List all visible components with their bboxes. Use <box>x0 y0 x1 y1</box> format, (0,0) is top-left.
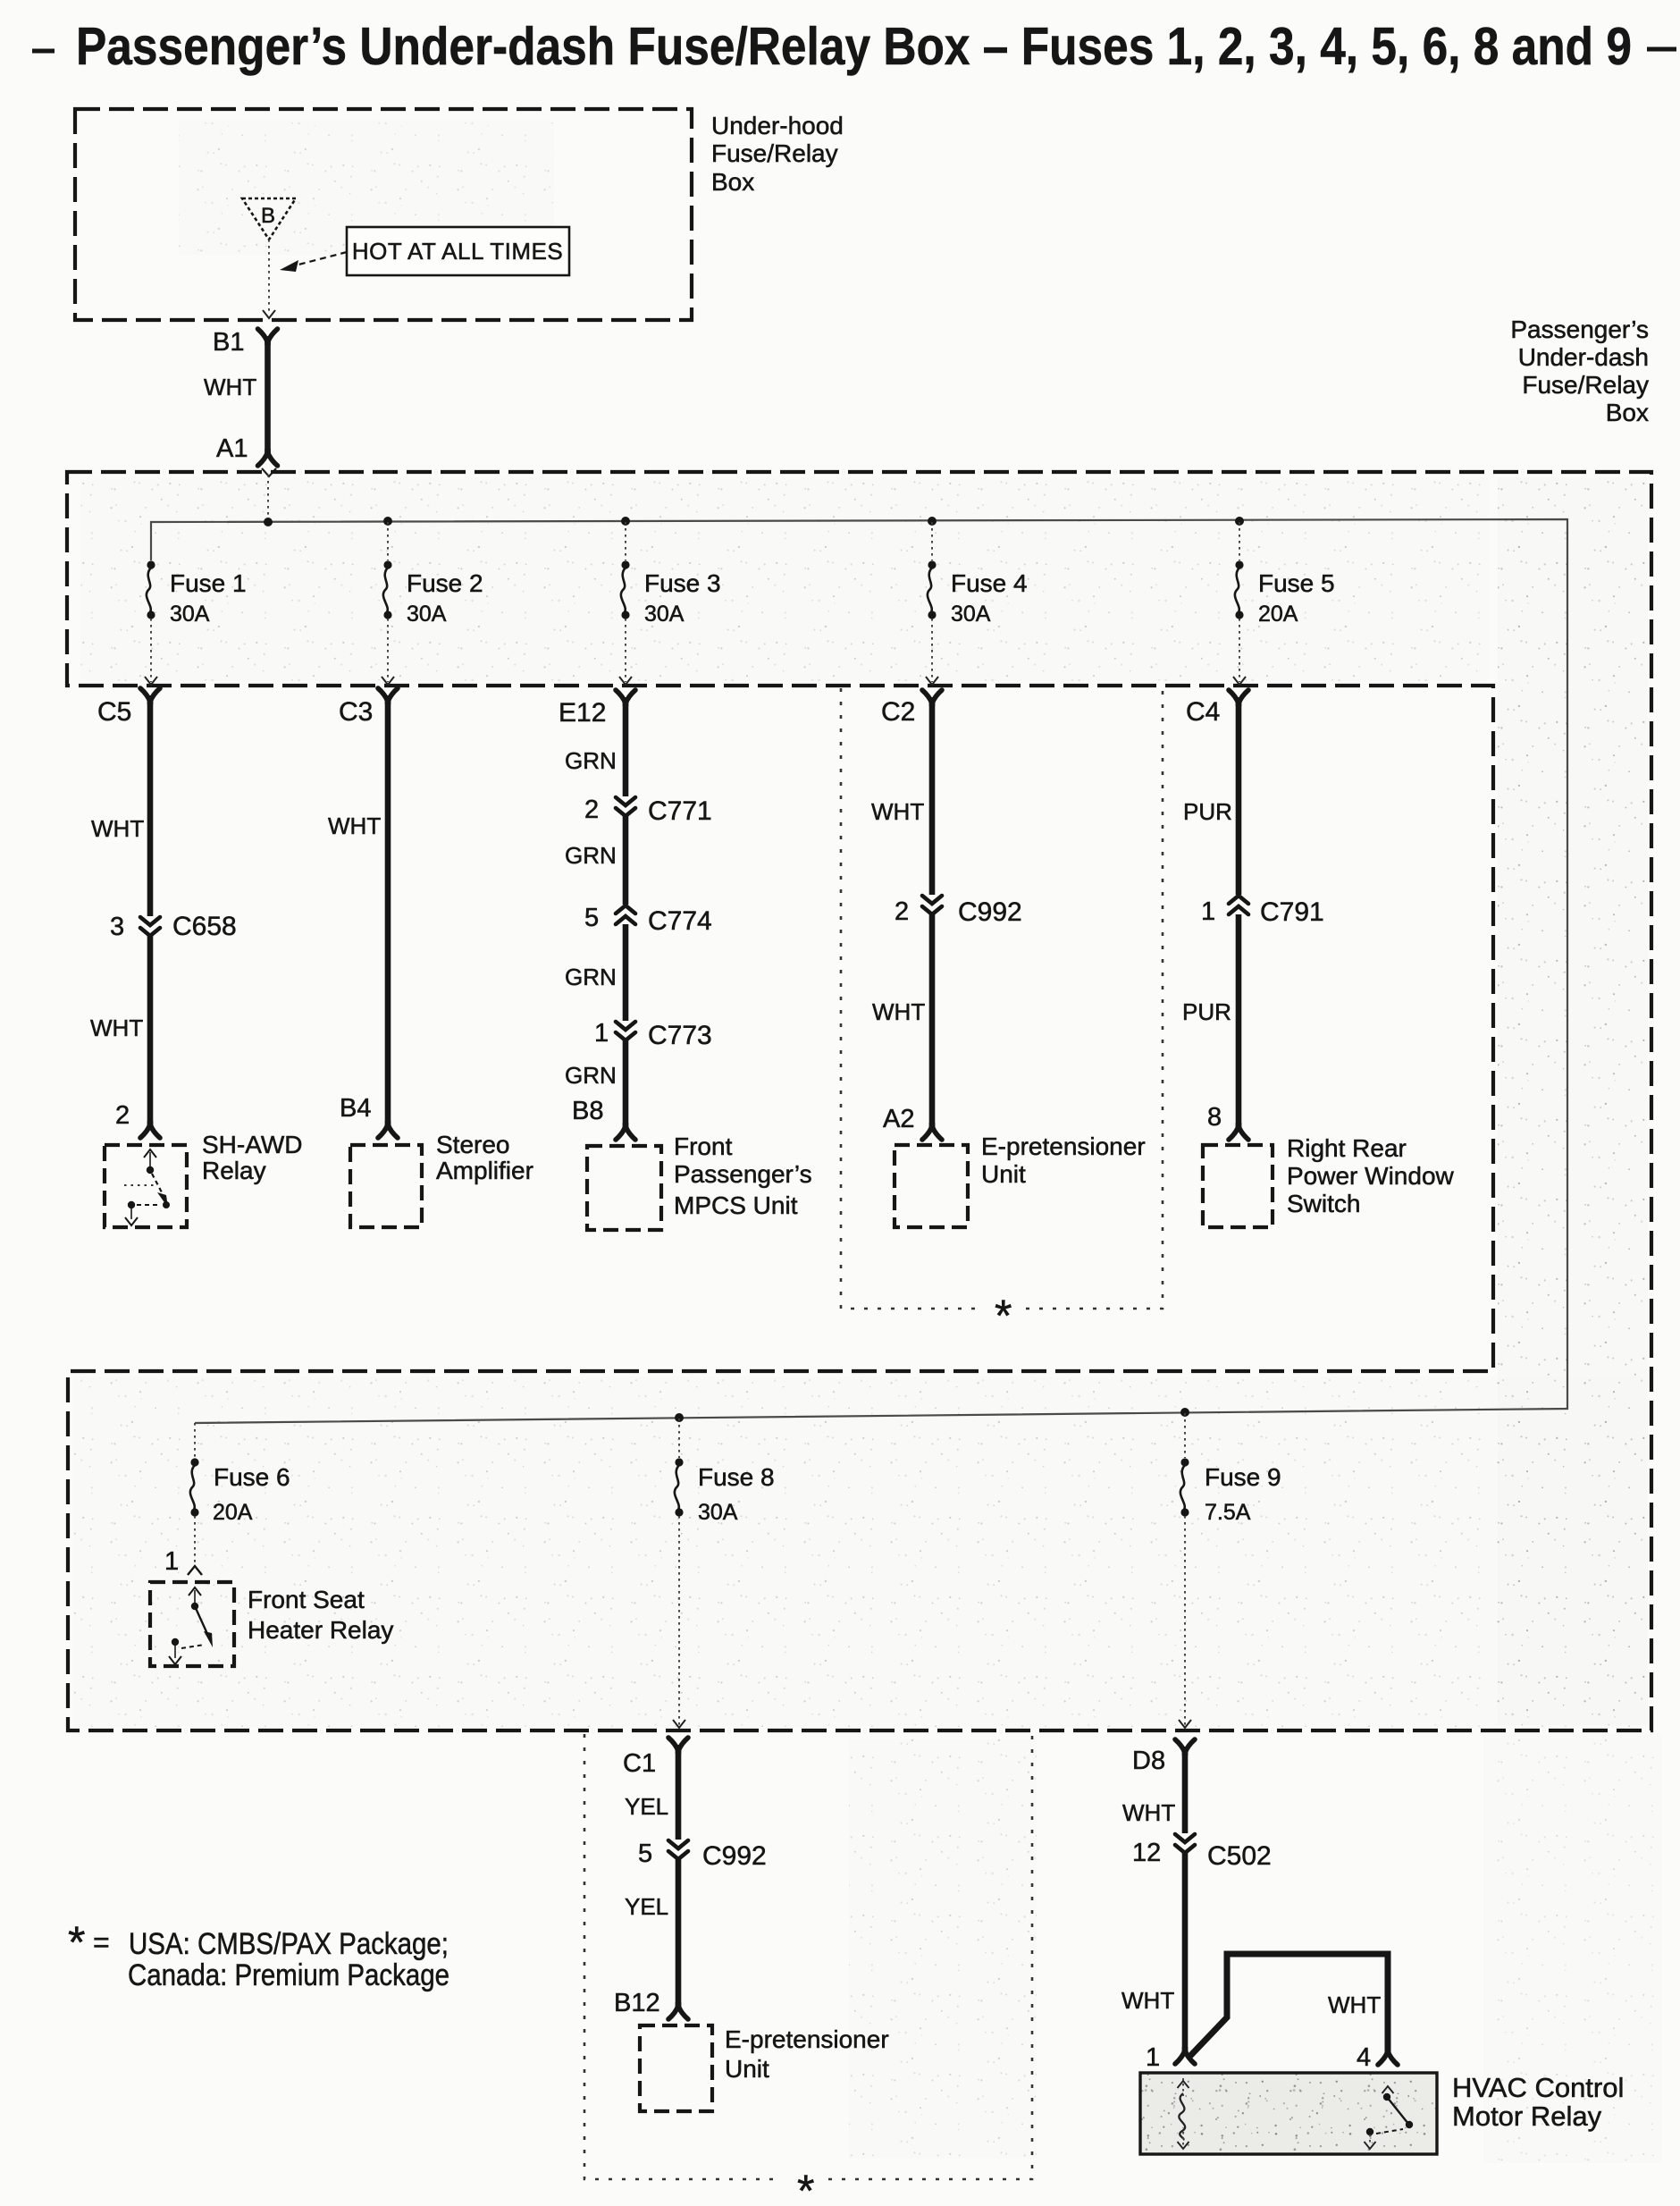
svg-text:Heater Relay: Heater Relay <box>248 1616 393 1644</box>
svg-text:C5: C5 <box>97 697 131 727</box>
svg-text:5: 5 <box>638 1840 652 1868</box>
svg-text:8: 8 <box>1207 1103 1222 1132</box>
svg-text:C992: C992 <box>958 897 1022 927</box>
svg-text:C3: C3 <box>339 697 373 727</box>
svg-text:1: 1 <box>1146 2043 1160 2072</box>
svg-text:4: 4 <box>1357 2043 1371 2072</box>
svg-text:B: B <box>261 204 275 228</box>
svg-text:30A: 30A <box>407 602 447 627</box>
svg-text:1: 1 <box>1201 897 1215 926</box>
svg-text:Stereo: Stereo <box>436 1131 510 1158</box>
svg-text:C1: C1 <box>623 1749 656 1778</box>
svg-text:Under-dash: Under-dash <box>1518 343 1649 371</box>
svg-text:WHT: WHT <box>872 998 925 1025</box>
svg-text:C658: C658 <box>172 912 237 941</box>
svg-text:WHT: WHT <box>328 813 381 839</box>
svg-text:Fuse/Relay: Fuse/Relay <box>1522 371 1649 399</box>
svg-text:*: * <box>68 1917 85 1967</box>
svg-text:Fuse 8: Fuse 8 <box>698 1463 775 1491</box>
svg-text:GRN: GRN <box>565 747 617 774</box>
svg-text:B8: B8 <box>572 1097 603 1125</box>
svg-text:Right Rear: Right Rear <box>1287 1134 1407 1162</box>
svg-text:1: 1 <box>164 1547 179 1576</box>
svg-text:Under-hood: Under-hood <box>711 112 844 139</box>
svg-text:Front: Front <box>674 1132 733 1160</box>
svg-text:USA: CMBS/PAX Package;: USA: CMBS/PAX Package; <box>129 1927 449 1961</box>
svg-text:B4: B4 <box>340 1094 371 1123</box>
svg-text:E12: E12 <box>559 698 606 728</box>
svg-text:C791: C791 <box>1260 897 1324 927</box>
svg-text:Fuse 9: Fuse 9 <box>1205 1463 1281 1491</box>
svg-text:30A: 30A <box>644 602 685 627</box>
svg-text:Box: Box <box>711 168 754 196</box>
svg-text:3: 3 <box>110 913 124 941</box>
svg-text:GRN: GRN <box>565 842 617 869</box>
svg-text:=: = <box>93 1926 110 1958</box>
svg-text:Passenger’s: Passenger’s <box>674 1160 812 1188</box>
svg-text:7.5A: 7.5A <box>1205 1500 1251 1525</box>
svg-text:WHT: WHT <box>1328 1991 1381 2018</box>
svg-text:B1: B1 <box>213 328 244 357</box>
svg-text:YEL: YEL <box>625 1893 668 1920</box>
svg-text:Fuse 3: Fuse 3 <box>644 569 721 597</box>
svg-text:Canada: Premium Package: Canada: Premium Package <box>128 1958 449 1992</box>
svg-text:C2: C2 <box>881 697 915 727</box>
svg-text:C771: C771 <box>648 796 712 826</box>
svg-text:D8: D8 <box>1132 1747 1165 1775</box>
svg-text:Unit: Unit <box>725 2055 769 2083</box>
svg-text:Power Window: Power Window <box>1287 1162 1455 1190</box>
svg-text:Fuse 1: Fuse 1 <box>170 569 247 597</box>
svg-text:5: 5 <box>584 904 599 932</box>
svg-text:PUR: PUR <box>1183 798 1232 825</box>
svg-text:Fuse 5: Fuse 5 <box>1258 569 1335 597</box>
svg-text:WHT: WHT <box>90 1015 143 1041</box>
svg-text:Amplifier: Amplifier <box>436 1157 533 1184</box>
svg-text:Fuse 2: Fuse 2 <box>407 569 483 597</box>
svg-text:HOT AT ALL TIMES: HOT AT ALL TIMES <box>352 238 563 265</box>
svg-text:2: 2 <box>895 897 909 926</box>
svg-text:*: * <box>995 1291 1012 1341</box>
svg-text:*: * <box>797 2166 814 2206</box>
svg-text:Fuse 6: Fuse 6 <box>214 1463 290 1491</box>
svg-text:Fuse 4: Fuse 4 <box>951 569 1028 597</box>
svg-text:A2: A2 <box>883 1105 914 1133</box>
svg-text:GRN: GRN <box>565 1062 617 1089</box>
svg-text:12: 12 <box>1132 1839 1161 1867</box>
svg-text:WHT: WHT <box>1121 1987 1174 2014</box>
svg-text:Passenger’s Under-dash Fuse/Re: Passenger’s Under-dash Fuse/Relay Box – … <box>76 17 1632 76</box>
svg-text:A1: A1 <box>216 434 248 463</box>
svg-text:Passenger’s: Passenger’s <box>1510 316 1649 343</box>
svg-text:2: 2 <box>584 796 599 824</box>
svg-text:Front Seat: Front Seat <box>248 1586 365 1613</box>
svg-text:Box: Box <box>1606 399 1649 426</box>
svg-text:Relay: Relay <box>202 1157 266 1184</box>
svg-text:WHT: WHT <box>1122 1799 1175 1826</box>
svg-text:C4: C4 <box>1186 697 1220 727</box>
svg-text:30A: 30A <box>698 1500 738 1525</box>
svg-text:E-pretensioner: E-pretensioner <box>981 1132 1146 1160</box>
svg-text:C502: C502 <box>1207 1841 1272 1871</box>
svg-text:2: 2 <box>115 1101 130 1130</box>
svg-text:C992: C992 <box>702 1841 767 1871</box>
svg-text:WHT: WHT <box>871 798 924 825</box>
svg-text:30A: 30A <box>170 602 210 627</box>
svg-text:SH-AWD: SH-AWD <box>202 1131 303 1158</box>
svg-text:GRN: GRN <box>565 964 617 990</box>
svg-text:C773: C773 <box>648 1021 712 1050</box>
svg-text:Unit: Unit <box>981 1160 1026 1188</box>
svg-text:Switch: Switch <box>1287 1190 1360 1217</box>
svg-text:1: 1 <box>594 1019 609 1048</box>
svg-text:Fuse/Relay: Fuse/Relay <box>711 139 838 167</box>
svg-text:30A: 30A <box>951 602 991 627</box>
svg-text:YEL: YEL <box>625 1793 668 1820</box>
svg-text:HVAC Control: HVAC Control <box>1452 2072 1624 2103</box>
svg-text:PUR: PUR <box>1182 998 1231 1025</box>
svg-text:C774: C774 <box>648 906 712 936</box>
svg-text:20A: 20A <box>1258 602 1298 627</box>
svg-text:WHT: WHT <box>91 815 144 842</box>
svg-text:E-pretensioner: E-pretensioner <box>725 2025 889 2053</box>
svg-text:WHT: WHT <box>204 374 256 400</box>
svg-text:20A: 20A <box>213 1500 253 1525</box>
svg-text:Motor Relay: Motor Relay <box>1452 2101 1602 2132</box>
svg-text:B12: B12 <box>614 1989 660 2017</box>
svg-text:MPCS Unit: MPCS Unit <box>674 1191 798 1219</box>
